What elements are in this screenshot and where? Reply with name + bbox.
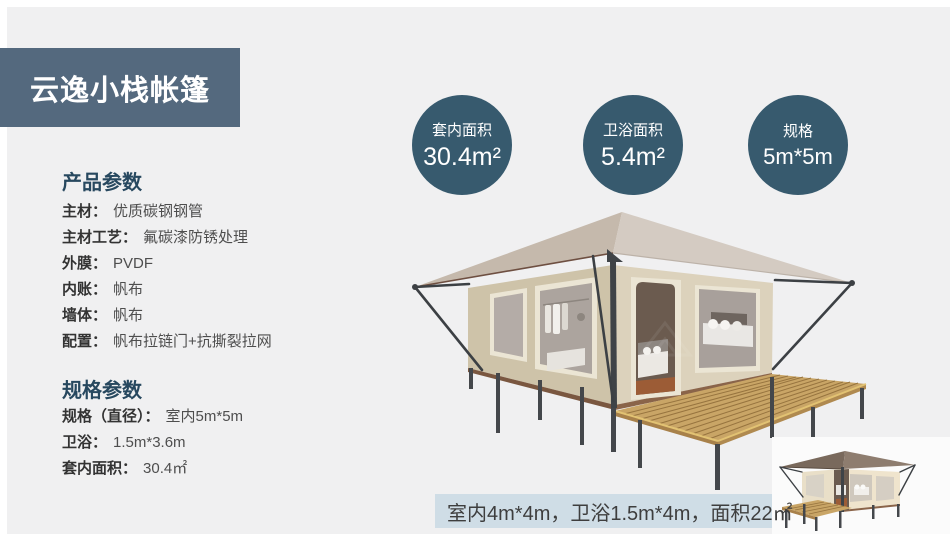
param-label: 主材工艺： xyxy=(62,229,137,246)
stat-label: 卫浴面积 xyxy=(603,119,663,140)
tent-door xyxy=(631,277,681,400)
param-row-config: 配置：帆布拉链门+抗撕裂拉网 xyxy=(62,329,272,355)
tent-window-bedroom xyxy=(695,285,760,373)
param-row-indoor-area: 套内面积：30.4㎡ xyxy=(62,456,243,482)
param-value: 氟碳漆防锈处理 xyxy=(143,229,248,246)
param-value: PVDF xyxy=(113,255,153,272)
product-params-list: 主材：优质碳钢钢管 主材工艺：氟碳漆防锈处理 外膜：PVDF 内账：帆布 墙体：… xyxy=(62,199,272,355)
param-row-spec-size: 规格（直径）：室内5m*5m xyxy=(62,404,243,430)
param-label: 套内面积： xyxy=(62,460,137,477)
param-value: 1.5m*3.6m xyxy=(113,434,186,451)
param-value: 帆布 xyxy=(113,281,143,298)
mini-tent-photo xyxy=(772,437,950,534)
param-value: 室内5m*5m xyxy=(166,408,244,425)
caption-bar: 室内4m*4m，卫浴1.5m*4m，面积22㎡ xyxy=(435,494,772,528)
stat-value: 30.4m² xyxy=(423,143,501,172)
mini-tent-illustration xyxy=(772,447,950,533)
param-label: 主材： xyxy=(62,203,107,220)
param-row-wall: 墙体：帆布 xyxy=(62,303,272,329)
title-band: 云逸小栈帐篷 xyxy=(0,48,240,127)
param-label: 墙体： xyxy=(62,307,107,324)
param-label: 卫浴： xyxy=(62,434,107,451)
param-row-bathroom: 卫浴：1.5m*3.6m xyxy=(62,430,243,456)
stat-circle-bathroom-area: 卫浴面积 5.4m² xyxy=(583,95,683,195)
tent-window-wardrobe xyxy=(535,277,597,379)
param-value: 帆布拉链门+抗撕裂拉网 xyxy=(113,333,272,350)
page-title: 云逸小栈帐篷 xyxy=(30,67,210,109)
mini-corner-pole xyxy=(841,467,844,512)
stat-label: 规格 xyxy=(783,120,813,141)
param-label: 外膜： xyxy=(62,255,107,272)
param-label: 配置： xyxy=(62,333,107,350)
spec-params-list: 规格（直径）：室内5m*5m 卫浴：1.5m*3.6m 套内面积：30.4㎡ xyxy=(62,404,243,482)
stat-circle-indoor-area: 套内面积 30.4m² xyxy=(412,95,512,195)
param-label: 内账： xyxy=(62,281,107,298)
spec-params-heading: 规格参数 xyxy=(62,374,142,403)
slide: 云逸小栈帐篷 套内面积 30.4m² 卫浴面积 5.4m² 规格 5m*5m 产… xyxy=(0,0,950,534)
param-row-material-craft: 主材工艺：氟碳漆防锈处理 xyxy=(62,225,272,251)
tent-window-left xyxy=(490,288,527,362)
mini-roof xyxy=(780,451,915,469)
stat-circle-spec: 规格 5m*5m xyxy=(748,95,848,195)
param-row-material: 主材：优质碳钢钢管 xyxy=(62,199,272,225)
param-row-inner-tent: 内账：帆布 xyxy=(62,277,272,303)
param-row-outer-membrane: 外膜：PVDF xyxy=(62,251,272,277)
product-params-heading: 产品参数 xyxy=(62,166,142,195)
stat-value: 5m*5m xyxy=(763,144,833,170)
param-value: 优质碳钢钢管 xyxy=(113,203,203,220)
param-value: 帆布 xyxy=(113,307,143,324)
param-label: 规格（直径）： xyxy=(62,408,160,425)
caption-text: 室内4m*4m，卫浴1.5m*4m，面积22㎡ xyxy=(447,497,793,526)
stat-value: 5.4m² xyxy=(601,143,665,172)
stat-label: 套内面积 xyxy=(432,119,492,140)
param-value: 30.4㎡ xyxy=(143,460,187,477)
